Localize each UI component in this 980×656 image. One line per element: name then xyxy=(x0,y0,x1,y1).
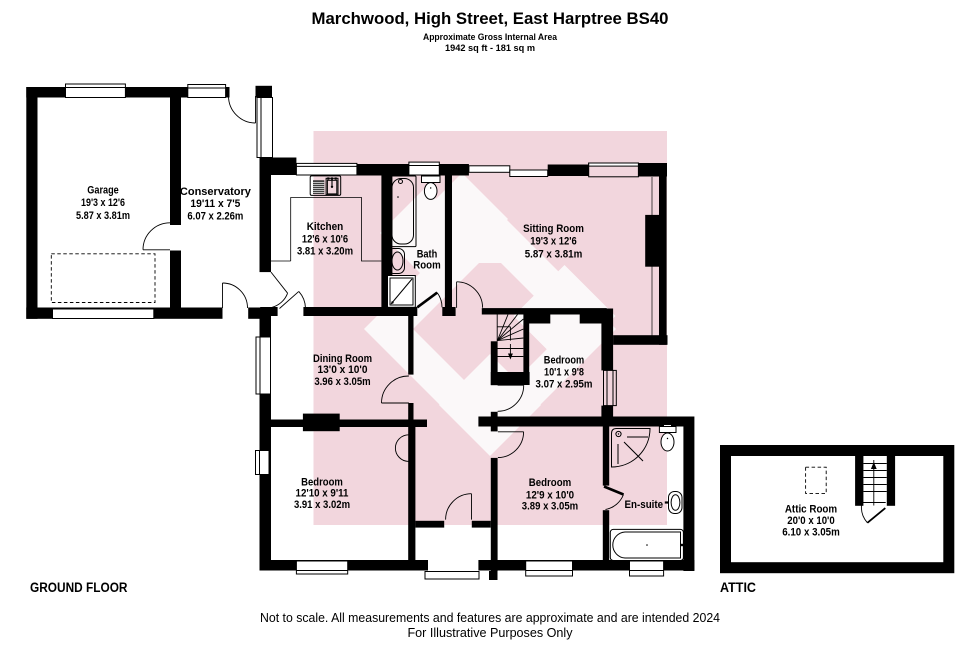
svg-text:19'3 x 12'6: 19'3 x 12'6 xyxy=(81,197,125,209)
svg-text:3.89 x 3.05m: 3.89 x 3.05m xyxy=(522,501,579,513)
svg-text:12'6 x 10'6: 12'6 x 10'6 xyxy=(302,234,348,246)
svg-text:6.10 x 3.05m: 6.10 x 3.05m xyxy=(782,526,840,538)
svg-text:5.87 x 3.81m: 5.87 x 3.81m xyxy=(525,248,583,260)
svg-text:ATTIC: ATTIC xyxy=(720,580,756,595)
svg-text:Room: Room xyxy=(413,260,441,272)
svg-text:Approximate Gross Internal Are: Approximate Gross Internal Area xyxy=(423,32,558,43)
svg-text:19'3 x 12'6: 19'3 x 12'6 xyxy=(530,236,576,248)
svg-text:Bedroom: Bedroom xyxy=(529,477,572,489)
svg-text:3.81 x 3.20m: 3.81 x 3.20m xyxy=(297,246,353,258)
svg-text:3.91 x 3.02m: 3.91 x 3.02m xyxy=(294,499,350,511)
svg-text:En-suite: En-suite xyxy=(625,499,664,511)
svg-text:19'11 x 7'5: 19'11 x 7'5 xyxy=(190,198,240,210)
svg-text:13'0 x 10'0: 13'0 x 10'0 xyxy=(318,364,368,376)
svg-text:Marchwood, High Street, East H: Marchwood, High Street, East Harptree BS… xyxy=(312,9,669,28)
svg-text:Attic Room: Attic Room xyxy=(785,503,837,515)
svg-text:Bedroom: Bedroom xyxy=(544,355,585,367)
svg-text:3.96 x 3.05m: 3.96 x 3.05m xyxy=(314,376,370,388)
svg-text:For Illustrative Purposes Only: For Illustrative Purposes Only xyxy=(408,625,573,640)
svg-text:12'10 x 9'11: 12'10 x 9'11 xyxy=(296,488,349,500)
svg-text:Sitting Room: Sitting Room xyxy=(523,223,584,235)
svg-text:GROUND FLOOR: GROUND FLOOR xyxy=(30,580,128,595)
svg-text:Kitchen: Kitchen xyxy=(307,221,344,233)
svg-text:1942 sq ft - 181 sq m: 1942 sq ft - 181 sq m xyxy=(445,43,535,54)
svg-text:3.07 x 2.95m: 3.07 x 2.95m xyxy=(536,379,593,391)
svg-text:Conservatory: Conservatory xyxy=(180,186,252,198)
svg-text:6.07 x 2.26m: 6.07 x 2.26m xyxy=(187,210,243,222)
svg-text:20'0 x 10'0: 20'0 x 10'0 xyxy=(787,515,834,527)
svg-text:Not to scale. All measurements: Not to scale. All measurements and featu… xyxy=(260,610,720,625)
svg-text:Garage: Garage xyxy=(87,185,119,197)
svg-text:5.87 x 3.81m: 5.87 x 3.81m xyxy=(76,210,130,222)
svg-text:10'1 x 9'8: 10'1 x 9'8 xyxy=(544,367,584,379)
svg-text:Bedroom: Bedroom xyxy=(301,477,343,489)
